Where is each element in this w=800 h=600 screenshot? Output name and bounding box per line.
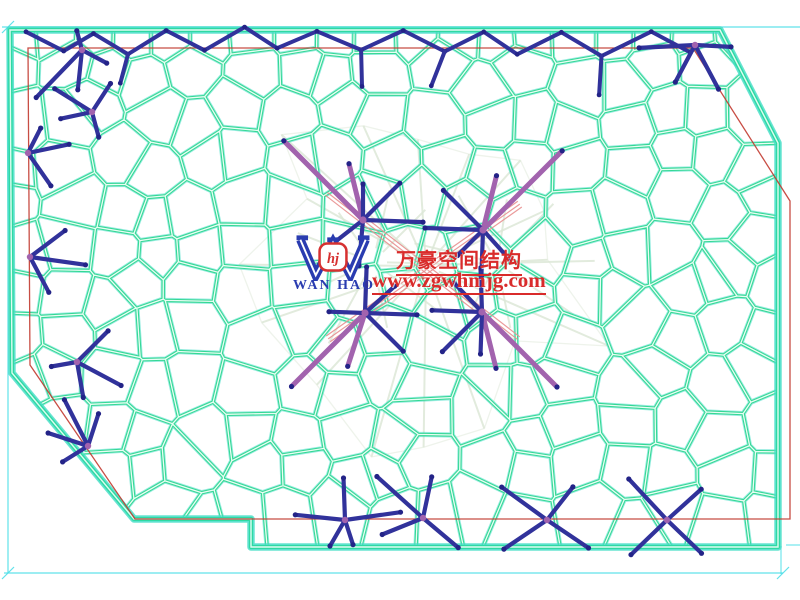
cad-drawing-stage: hj WAN HAO 万豪空间结构 www.zgwhmjg.com (0, 0, 800, 600)
roof-structure-drawing (0, 0, 800, 600)
